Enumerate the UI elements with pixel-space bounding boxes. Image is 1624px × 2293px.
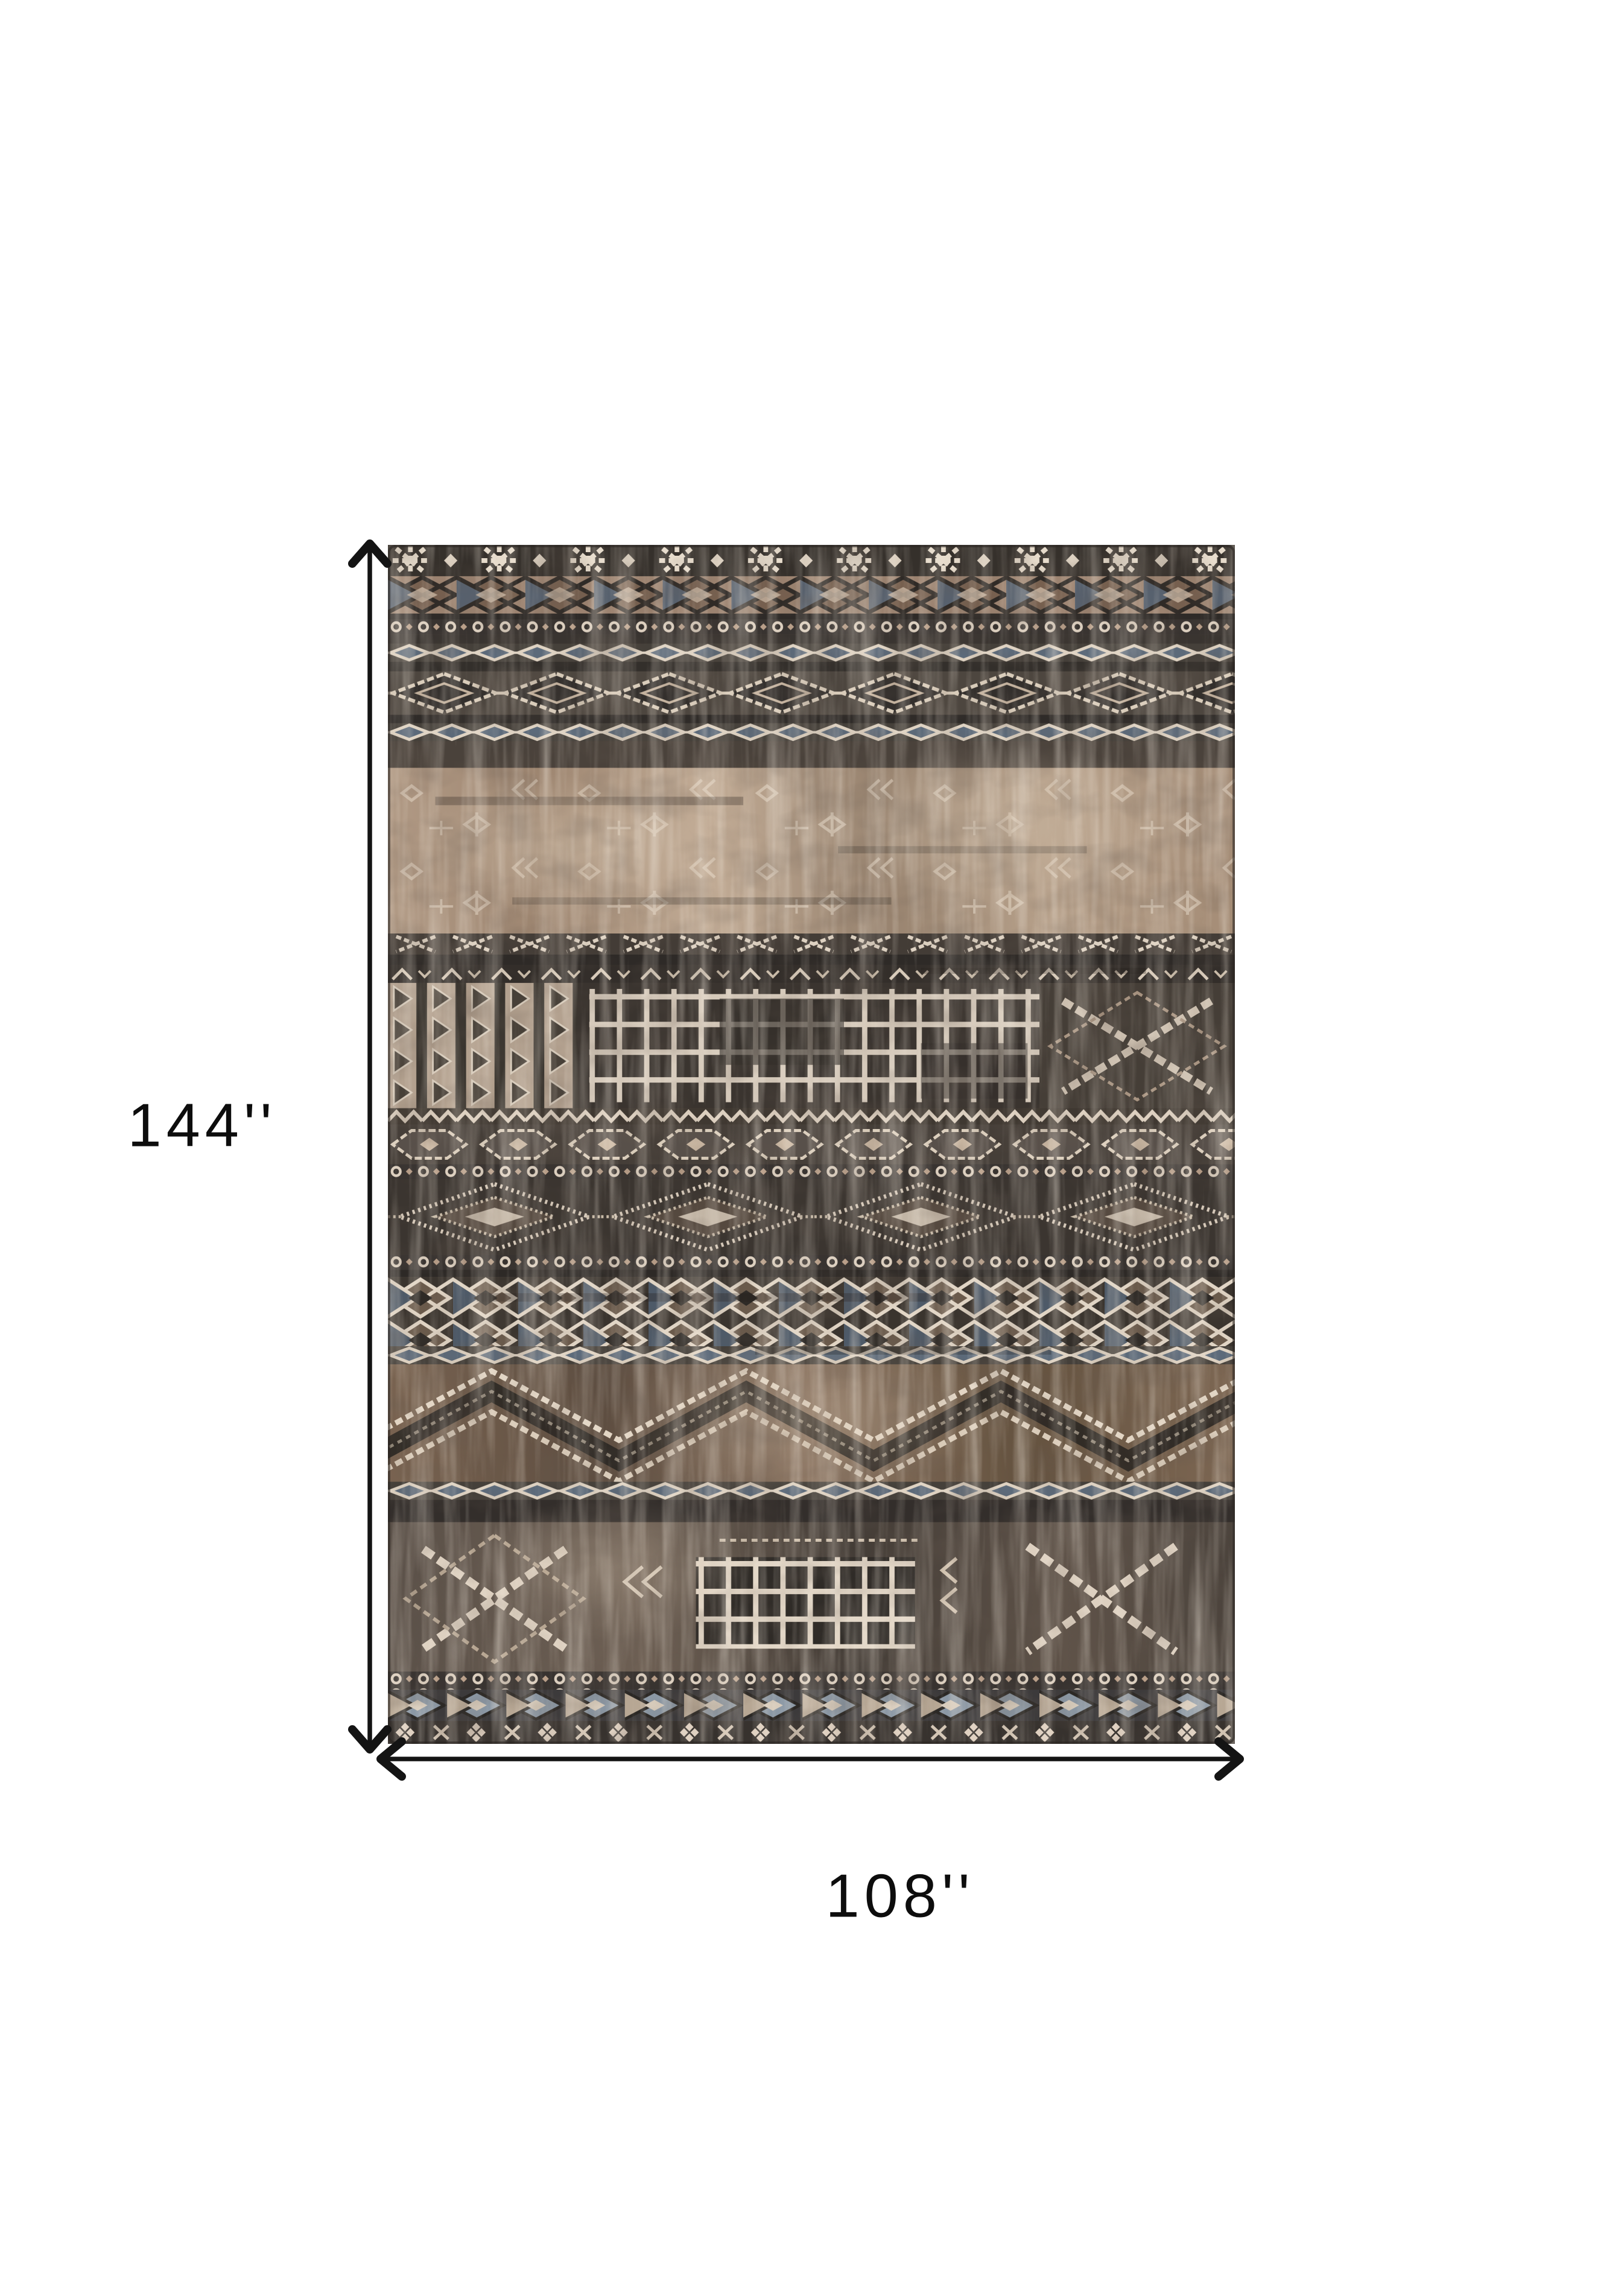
width-dimension-label: 108'' (825, 1862, 974, 1932)
height-dimension-arrow (352, 544, 387, 1749)
height-dimension-label: 144'' (127, 1092, 276, 1161)
product-dimension-figure: 144'' 108'' (0, 0, 1624, 2293)
width-dimension-arrow (381, 1741, 1240, 1776)
